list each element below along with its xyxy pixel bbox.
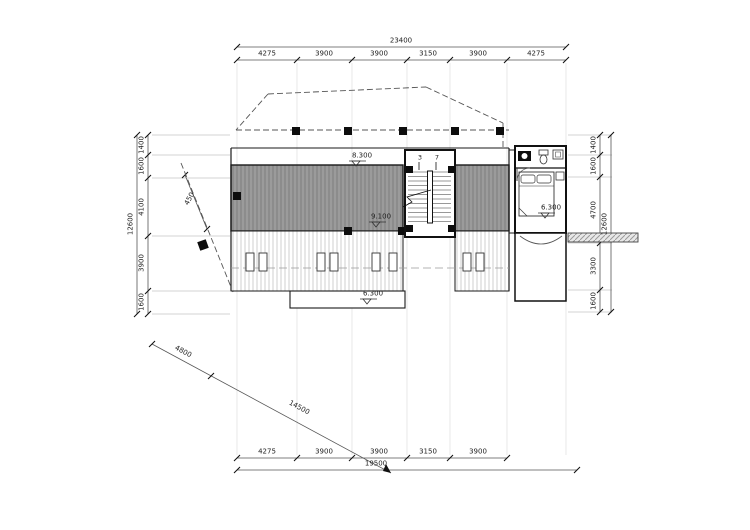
dim-top-seg: 3900 — [315, 51, 333, 58]
level-label-roof-mid: 9.100 — [371, 214, 391, 221]
dim-bottom-seg: 4275 — [258, 449, 276, 456]
dim-top-seg: 3900 — [469, 51, 487, 58]
dim-right-seg: 3300 — [591, 257, 598, 275]
lower-room — [515, 233, 566, 301]
level-label-roof-upper: 8.300 — [352, 153, 372, 160]
stair-flight-number: 3 — [418, 155, 422, 162]
dim-left-seg: 3900 — [139, 254, 146, 272]
dim-right-seg: 1600 — [591, 292, 598, 310]
dim-bottom-seg: 3900 — [370, 449, 388, 456]
level-label-room: 6.300 — [541, 205, 561, 212]
floor-plan-canvas: 23400 4275 3900 3900 3150 3900 4275 4275… — [0, 0, 750, 530]
dim-top-total: 23400 — [390, 38, 412, 45]
dim-left-total: 12600 — [128, 213, 135, 235]
sink-basin — [522, 153, 528, 159]
stair-core — [403, 150, 455, 237]
dim-left-seg: 1400 — [139, 136, 146, 154]
dim-left-seg: 1600 — [139, 157, 146, 175]
stair-flight-number: 7 — [435, 155, 439, 162]
entrance-canopy — [290, 291, 405, 308]
dim-top-seg: 4275 — [527, 51, 545, 58]
dim-bottom-seg: 3900 — [315, 449, 333, 456]
dim-bottom-total: 19500 — [365, 461, 387, 468]
dim-left-seg: 4100 — [139, 198, 146, 216]
dim-top-seg: 4275 — [258, 51, 276, 58]
dim-right-seg: 1600 — [591, 157, 598, 175]
level-label-canopy: 6.300 — [363, 291, 383, 298]
dim-bottom-seg: 3150 — [419, 449, 437, 456]
dim-left-seg: 1600 — [139, 293, 146, 311]
dim-top-seg: 3900 — [370, 51, 388, 58]
dim-bottom-seg: 3900 — [469, 449, 487, 456]
dim-top-seg: 3150 — [419, 51, 437, 58]
right-block — [509, 146, 638, 301]
dim-right-seg: 4700 — [591, 201, 598, 219]
dim-right-seg: 1400 — [591, 136, 598, 154]
dim-right-total: 12600 — [602, 213, 609, 235]
